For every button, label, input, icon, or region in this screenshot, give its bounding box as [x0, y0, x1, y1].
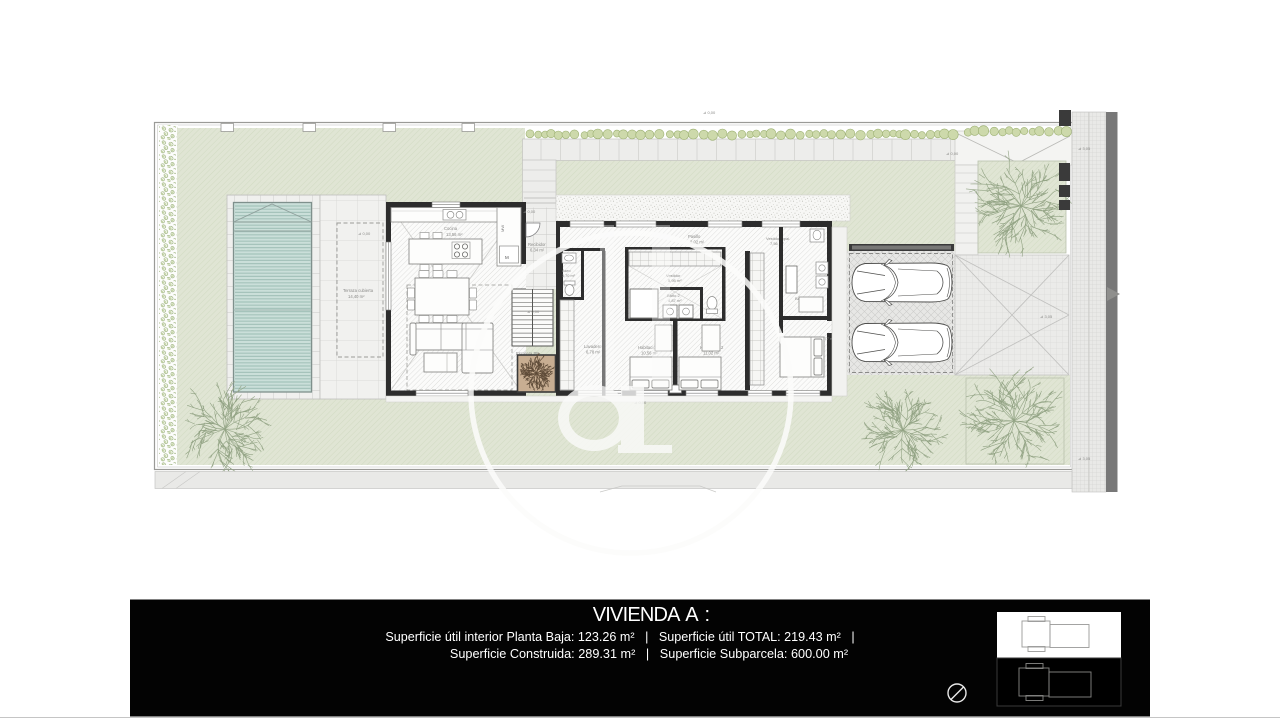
svg-text:5,95 m²: 5,95 m²: [668, 278, 682, 283]
svg-text:⊿ 0,00: ⊿ 0,00: [946, 151, 959, 156]
svg-text:⊿ 3,05: ⊿ 3,05: [1078, 146, 1091, 151]
svg-text:14,40 m²: 14,40 m²: [348, 294, 365, 299]
svg-text:Aseo: Aseo: [562, 269, 571, 273]
svg-text:⊿ 3,05: ⊿ 3,05: [1078, 456, 1091, 461]
svg-text:M: M: [505, 255, 509, 260]
svg-text:⊿ 0,00: ⊿ 0,00: [527, 309, 540, 314]
svg-text:3,70 m²: 3,70 m²: [562, 274, 576, 278]
svg-text:VIVIENDA A :: VIVIENDA A :: [593, 604, 709, 626]
svg-text:4,87 m²: 4,87 m²: [668, 298, 682, 303]
svg-text:Cocina: Cocina: [444, 226, 458, 231]
svg-text:⊿ 0,00: ⊿ 0,00: [358, 231, 371, 236]
svg-text:Lavadero: Lavadero: [584, 344, 602, 349]
svg-text:MW: MW: [500, 225, 505, 232]
svg-text:⊿ 0,00: ⊿ 0,00: [523, 209, 536, 214]
svg-text:Recibidor: Recibidor: [528, 242, 546, 247]
svg-text:Terraza cubierta: Terraza cubierta: [343, 288, 374, 293]
svg-text:Pasillo: Pasillo: [688, 234, 701, 239]
svg-text:Superficie Construida: 289.31: Superficie Construida: 289.31 m² | Super…: [450, 647, 848, 661]
svg-text:⊿ 3,05: ⊿ 3,05: [1040, 314, 1053, 319]
svg-text:⊿ 0,00: ⊿ 0,00: [703, 110, 716, 115]
svg-text:Superficie útil interior Plant: Superficie útil interior Planta Baja: 12…: [385, 630, 854, 644]
svg-text:6,34 m²: 6,34 m²: [530, 248, 545, 253]
svg-text:6,78 m²: 6,78 m²: [586, 350, 601, 355]
svg-text:13,56 m²: 13,56 m²: [446, 232, 463, 237]
